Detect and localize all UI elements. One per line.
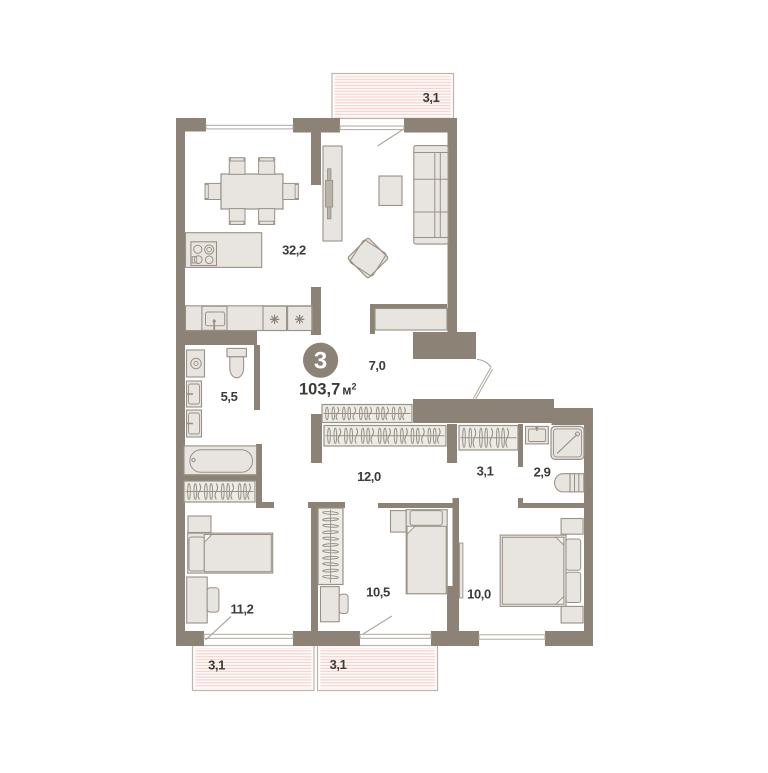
svg-text:3,1: 3,1 xyxy=(477,464,494,479)
svg-text:7,0: 7,0 xyxy=(369,358,386,373)
svg-text:103,7м2: 103,7м2 xyxy=(299,381,357,399)
svg-text:10,0: 10,0 xyxy=(467,587,491,602)
svg-text:10,5: 10,5 xyxy=(366,585,390,600)
svg-text:3,1: 3,1 xyxy=(423,90,440,105)
svg-text:3,1: 3,1 xyxy=(208,658,225,673)
svg-text:12,0: 12,0 xyxy=(357,469,381,484)
svg-text:5,5: 5,5 xyxy=(221,389,238,404)
svg-text:3: 3 xyxy=(314,348,327,375)
svg-text:3,1: 3,1 xyxy=(330,657,347,672)
svg-text:2,9: 2,9 xyxy=(534,465,551,480)
svg-text:32,2: 32,2 xyxy=(282,243,306,258)
svg-text:11,2: 11,2 xyxy=(231,602,254,617)
